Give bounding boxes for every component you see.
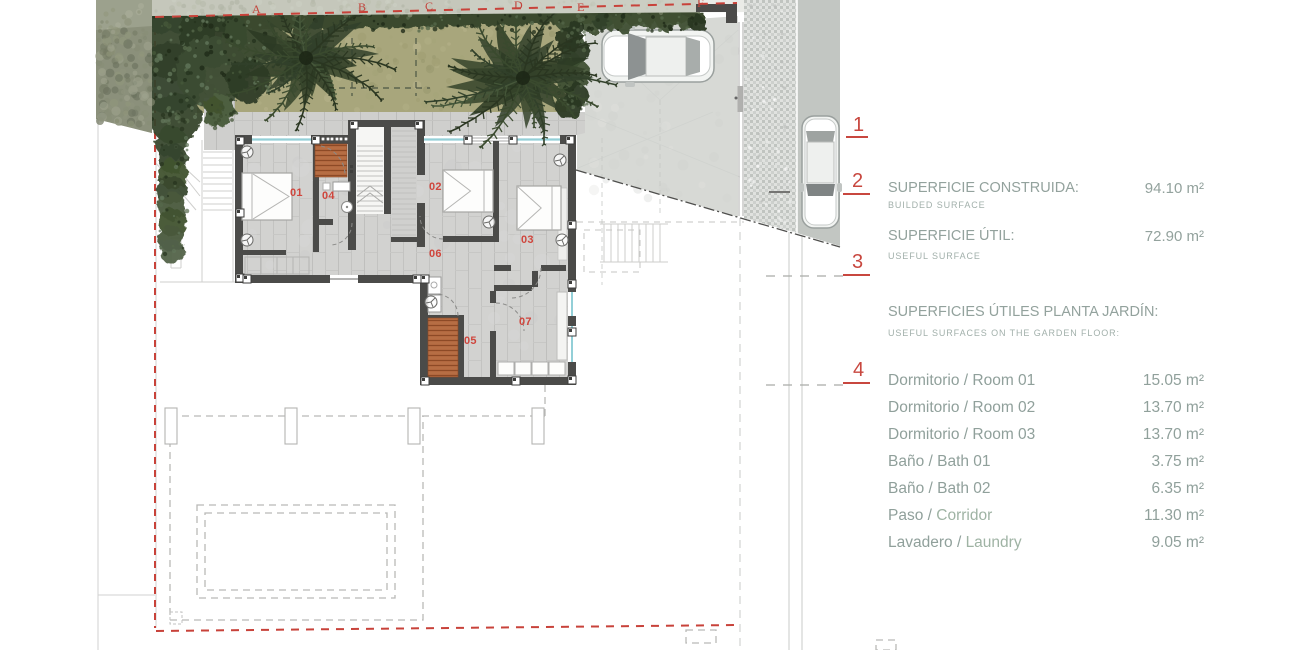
svg-text:07: 07 xyxy=(519,316,532,328)
svg-text:06: 06 xyxy=(429,248,442,260)
svg-text:02: 02 xyxy=(429,181,442,193)
svg-text:A: A xyxy=(252,2,261,16)
svg-text:D: D xyxy=(514,0,523,12)
svg-text:F: F xyxy=(697,0,704,10)
svg-text:E: E xyxy=(577,0,584,14)
svg-text:B: B xyxy=(358,0,366,14)
svg-text:01: 01 xyxy=(290,187,303,199)
svg-text:05: 05 xyxy=(464,335,477,347)
svg-text:03: 03 xyxy=(521,234,534,246)
svg-text:04: 04 xyxy=(322,190,335,202)
svg-text:C: C xyxy=(425,0,433,13)
